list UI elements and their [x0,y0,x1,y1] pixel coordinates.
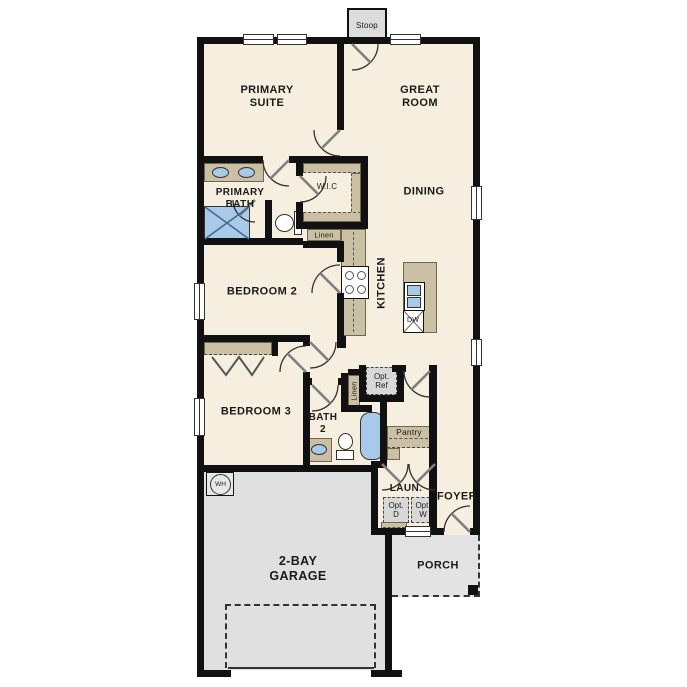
optional-washer: Opt. W [411,497,435,523]
island-sink [404,282,425,311]
stove [341,266,369,299]
opt-washer-label: Opt. W [415,501,430,519]
garage-door-dashed [225,604,376,668]
primary-suite-label: PRIMARY SUITE [240,84,293,110]
dishwasher-label: DW [407,317,419,325]
bedroom3-closet-shelf [204,342,272,355]
burner [345,271,354,280]
dining-label: DINING [404,185,445,198]
pantry-shelf-dashed [389,438,428,439]
bath2-label: BATH 2 [309,412,338,436]
laundry-label: LAUN. [390,483,423,495]
primary-bath-label: PRIMARY BATH [216,187,265,211]
wh-label: WH [215,481,226,488]
stoop: Stoop [347,8,387,44]
sink-basin [407,285,421,296]
laundry-shelf-dashed [383,527,405,528]
water-heater: WH [210,474,231,495]
opt-dryer-label: Opt. D [388,501,403,519]
linen-kitchen-label: Linen [314,231,333,240]
window [471,186,482,220]
primary-toilet-bowl [275,214,294,232]
optional-dryer: Opt. D [383,497,409,523]
window [194,398,205,436]
wic-label: W.I.C [317,182,338,192]
bath2-toilet-bowl [338,433,353,450]
pantry-label: Pantry [396,427,422,437]
garage-label: 2-BAY GARAGE [269,554,326,584]
burner [345,285,354,294]
window [194,283,205,320]
great-room-label: GREAT ROOM [400,84,440,110]
foyer-label: FOYER [437,490,477,503]
bath2-tub [360,412,384,460]
wic-shelf-bottom [303,212,361,222]
floor-plan: Stoop Opt. Ref Opt. D [0,0,687,687]
primary-sink-1 [212,167,229,178]
bath2-toilet-tank [336,450,354,460]
primary-toilet-tank [294,211,302,235]
opt-ref-label: Opt. Ref [374,372,389,390]
pantry-shelf-side [387,448,400,460]
kitchen-label: KITCHEN [375,257,388,309]
window [390,34,421,45]
linen-bath2-label: Linen [350,381,359,400]
window [405,526,431,537]
window [471,339,482,366]
primary-sink-2 [238,167,255,178]
sink-basin [407,297,421,308]
bath2-sink [311,444,327,455]
optional-refrigerator: Opt. Ref [366,367,397,395]
window [277,34,307,45]
primary-shower [204,206,250,240]
window [243,34,274,45]
porch-label: PORCH [417,559,459,572]
bedroom2-label: BEDROOM 2 [227,285,297,298]
burner [357,285,366,294]
burner [357,271,366,280]
wic-shelf-top [303,163,361,173]
bedroom3-label: BEDROOM 3 [221,405,291,418]
stoop-label: Stoop [356,21,378,31]
